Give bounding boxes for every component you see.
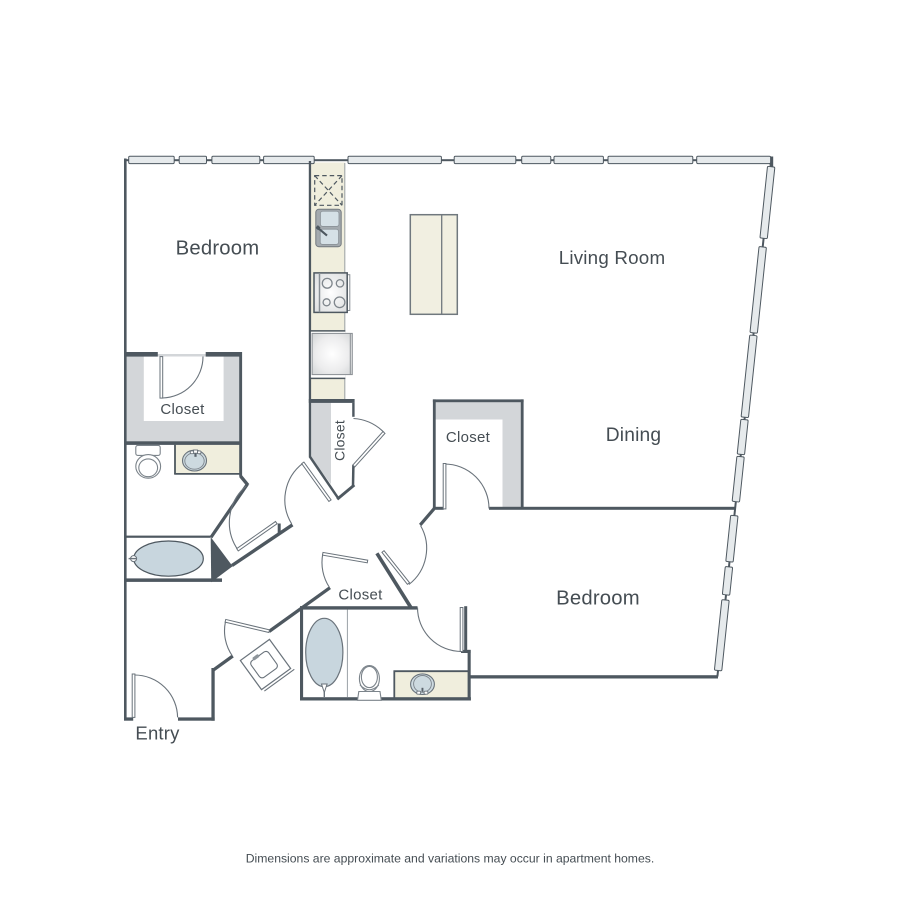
svg-text:Closet: Closet	[338, 587, 383, 604]
svg-text:Closet: Closet	[332, 420, 348, 461]
svg-text:Dimensions are approximate and: Dimensions are approximate and variation…	[246, 852, 654, 866]
svg-text:Bedroom: Bedroom	[556, 588, 640, 610]
svg-text:Entry: Entry	[135, 723, 180, 744]
svg-text:Living Room: Living Room	[559, 247, 666, 268]
svg-text:Closet: Closet	[160, 401, 205, 418]
svg-text:Closet: Closet	[446, 429, 491, 446]
svg-text:Dining: Dining	[606, 425, 662, 446]
svg-text:Bedroom: Bedroom	[176, 238, 260, 260]
